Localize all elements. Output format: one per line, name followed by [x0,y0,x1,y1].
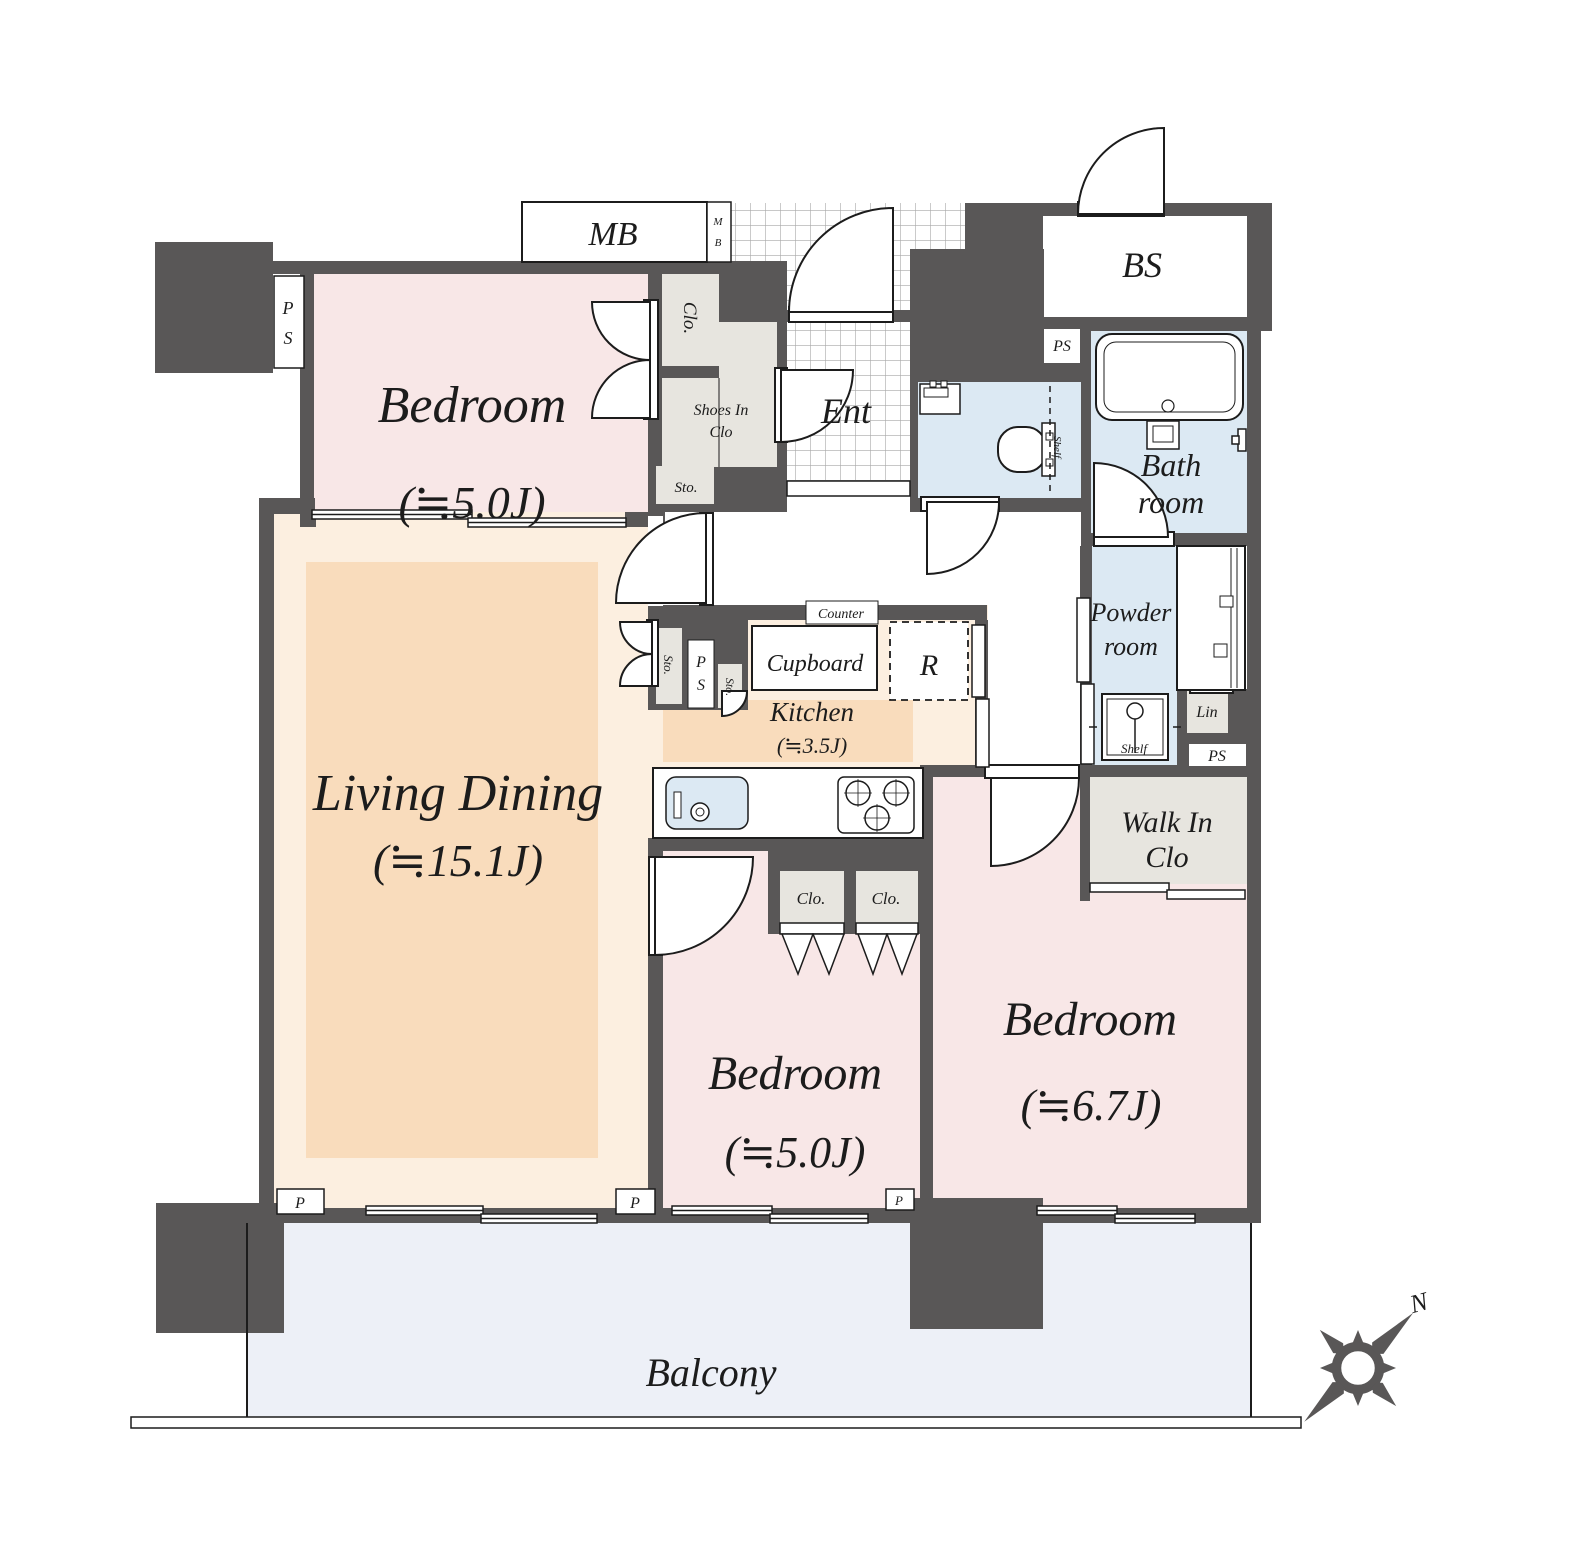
compass-north-label: N [1406,1286,1433,1319]
floor-plan-page: Bedroom (≒5.0J) Living Dining (≒15.1J) K… [0,0,1575,1542]
closet-bedroom-center-right-label: Clo. [872,889,901,908]
wall-segment [910,1198,1043,1329]
balcony-railing [131,1417,1301,1428]
washing-machine-space [1177,546,1245,690]
mb-small-box [707,202,731,262]
kitchen-label: Kitchen [769,697,854,727]
wall-segment [1080,777,1090,901]
bedroom-center-size: (≒5.0J) [725,1128,866,1177]
bedroom-center-label: Bedroom [708,1047,882,1100]
entrance-label: Ent [820,391,872,431]
living-dining-size: (≒15.1J) [373,835,543,886]
storage-kitchen-left-label: Sto. [661,655,676,675]
wall-segment [965,203,1043,317]
storage-kitchen-right-label: Sto. [723,678,737,696]
ps-kitchen-box [688,640,714,708]
bedroom-right-label: Bedroom [1003,993,1177,1046]
pipe-left-label: P [294,1195,305,1212]
cupboard-label: Cupboard [767,651,864,677]
ps-kitchen-line2: S [697,677,705,694]
wall-segment [1043,317,1272,331]
ps-top-left-line2: S [284,328,293,348]
ps-top-left-line1: P [282,298,294,318]
ps-center-label: PS [1052,338,1071,355]
stove [838,777,914,833]
refrigerator-label: R [919,649,938,682]
shoes-in-closet-line1: Shoes In [694,402,749,419]
shelf-toilet-label: Shelf [1051,436,1063,460]
wall-segment [259,498,315,514]
ps-top-left-box [274,276,304,368]
shoes-in-closet-line2: Clo [709,424,732,441]
ps-bottom-label: PS [1207,748,1226,765]
wall-segment [916,851,933,934]
bathroom-label-line2: room [1138,484,1204,520]
walk-in-closet-line1: Walk In [1121,806,1212,839]
living-dining-label: Living Dining [312,765,603,822]
linen-label: Lin [1195,704,1217,721]
mb-small-line1: M [712,216,723,228]
closet-bedroom-center-left-label: Clo. [797,889,826,908]
bathroom-label-line1: Bath [1141,447,1201,483]
shoes-in-closet-box-upper [719,322,777,378]
pipe-center-label: P [629,1195,640,1212]
wall-segment [1081,329,1091,546]
ps-kitchen-line1: P [695,654,706,671]
bedroom-top-label: Bedroom [378,377,567,434]
bs-door-swing [1078,128,1164,214]
wall-segment [768,851,780,934]
kitchen-size: (≒3.5J) [777,733,847,758]
wall-segment [155,242,273,373]
balcony-label: Balcony [645,1350,776,1395]
wall-segment [1247,216,1272,317]
bedroom-right-door-leaf [985,765,1079,778]
powder-label-line1: Powder [1090,598,1173,627]
wall-segment [648,838,928,851]
counter-label: Counter [818,607,864,622]
bs-label: BS [1122,245,1162,285]
walk-in-closet-line2: Clo [1145,841,1188,874]
storage-hall-label: Sto. [675,480,698,496]
floor-plan-drawing: Bedroom (≒5.0J) Living Dining (≒15.1J) K… [0,0,1575,1542]
mb-label: MB [587,216,637,253]
wall-segment [910,382,918,498]
kitchen-counter [653,768,923,838]
bedroom-right-size: (≒6.7J) [1021,1081,1162,1130]
wall-segment [920,765,1261,777]
closet-bedroom-top-label: Clo. [679,302,700,334]
wall-segment [844,851,856,934]
wall-segment [156,1203,284,1333]
bedroom-top-size: (≒5.0J) [398,477,545,528]
wall-segment [259,512,274,1223]
toilet-door-swing [927,502,999,574]
mb-small-line2: B [715,237,722,249]
powder-label-line2: room [1104,632,1158,661]
shelf-powder-label: Shelf [1121,741,1149,756]
pipe-right-label: P [894,1193,903,1208]
entrance-step [787,481,910,496]
